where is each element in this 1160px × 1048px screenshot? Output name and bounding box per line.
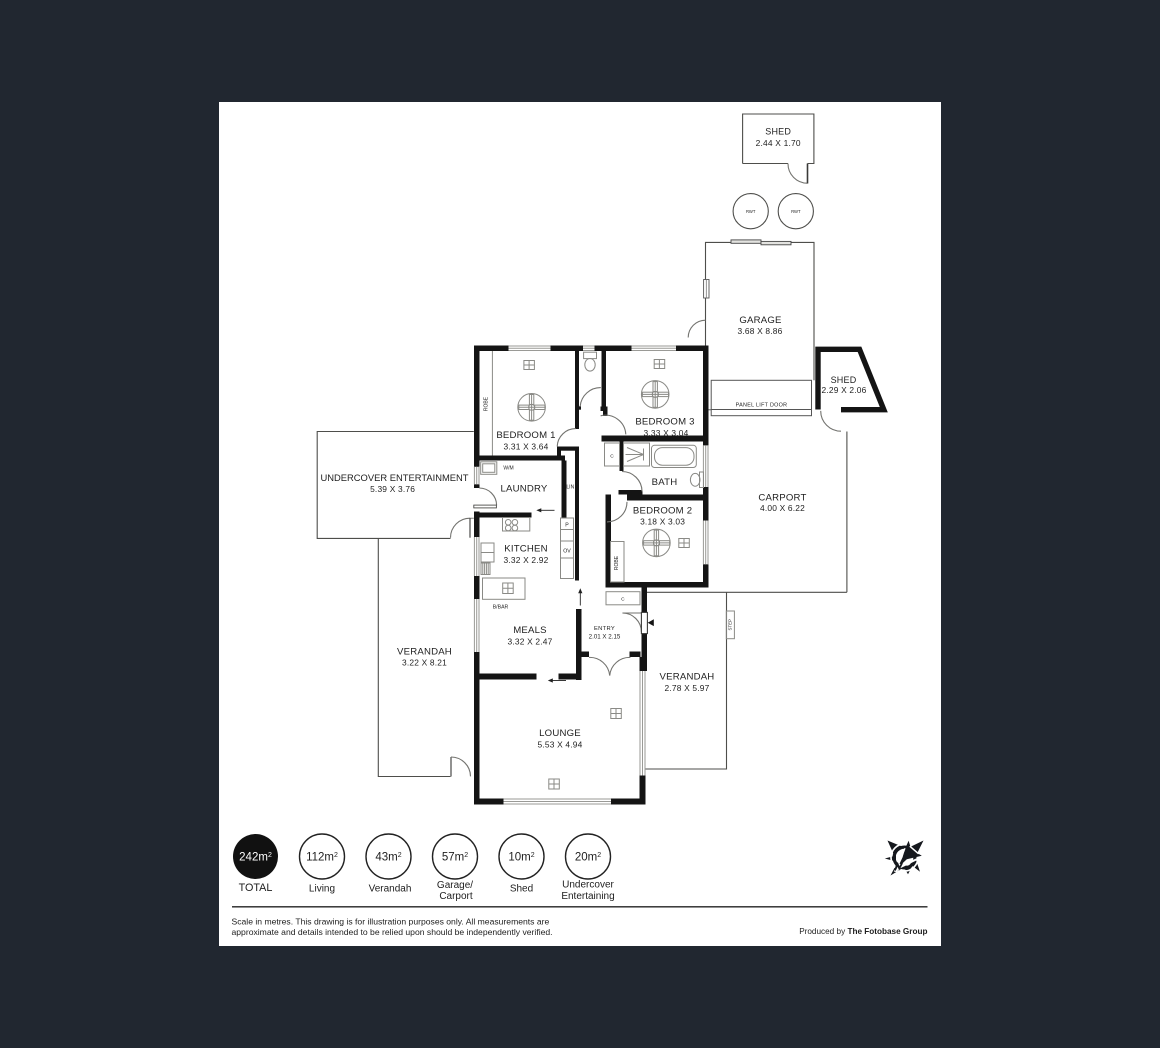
svg-text:UNDERCOVER ENTERTAINMENT: UNDERCOVER ENTERTAINMENT [320,472,468,483]
svg-text:LAUNDRY: LAUNDRY [500,483,547,494]
svg-text:Scale in metres. This drawing: Scale in metres. This drawing is for ill… [232,917,550,927]
svg-text:3.68 X 8.86: 3.68 X 8.86 [737,326,782,336]
svg-text:3.32 X 2.47: 3.32 X 2.47 [507,636,552,646]
svg-text:3.22 X 8.21: 3.22 X 8.21 [402,658,447,668]
svg-text:ENTRY: ENTRY [594,626,615,632]
svg-text:Produced by The Fotobase Group: Produced by The Fotobase Group [799,927,927,936]
svg-text:MEALS: MEALS [513,625,547,636]
svg-text:OV: OV [563,549,571,555]
svg-text:BEDROOM 2: BEDROOM 2 [633,506,692,517]
svg-text:GARAGE: GARAGE [739,315,781,326]
svg-text:BEDROOM 1: BEDROOM 1 [496,430,555,441]
svg-text:SHED: SHED [831,375,857,385]
svg-text:242m2: 242m2 [239,852,272,864]
svg-text:112m2: 112m2 [306,852,338,864]
svg-text:5.39 X 3.76: 5.39 X 3.76 [370,484,415,494]
svg-text:B/BAR: B/BAR [493,604,509,610]
svg-text:2.29 X 2.06: 2.29 X 2.06 [821,385,866,395]
svg-text:approximate and details intend: approximate and details intended to be r… [232,927,553,937]
svg-text:2.01 X 2.15: 2.01 X 2.15 [589,634,621,641]
svg-text:STEP: STEP [728,619,733,631]
svg-text:ROBE: ROBE [483,396,489,411]
svg-text:BEDROOM 3: BEDROOM 3 [635,417,694,428]
svg-text:TOTAL: TOTAL [239,882,273,894]
svg-text:BATH: BATH [652,477,678,488]
svg-text:4.00 X 6.22: 4.00 X 6.22 [760,503,805,513]
svg-text:RWT: RWT [746,209,756,214]
svg-text:ROBE: ROBE [614,555,620,570]
svg-text:3.33 X 3.04: 3.33 X 3.04 [643,428,688,438]
svg-text:Entertaining: Entertaining [561,891,614,902]
svg-text:LIN: LIN [566,484,574,490]
svg-text:Carport: Carport [439,891,473,902]
svg-text:W/M: W/M [503,466,513,472]
svg-text:KITCHEN: KITCHEN [504,544,548,555]
svg-text:PANEL LIFT DOOR: PANEL LIFT DOOR [736,402,788,408]
svg-text:LOUNGE: LOUNGE [539,728,581,739]
svg-text:C: C [621,597,625,603]
svg-text:Garage/: Garage/ [437,880,473,891]
svg-text:3.32 X 2.92: 3.32 X 2.92 [503,555,548,565]
svg-text:2.78 X 5.97: 2.78 X 5.97 [664,683,709,693]
svg-text:SHED: SHED [765,127,791,137]
svg-text:P: P [565,523,569,529]
svg-text:3.31 X 3.64: 3.31 X 3.64 [503,441,548,451]
svg-text:Verandah: Verandah [369,884,412,895]
svg-text:VERANDAH: VERANDAH [660,672,715,683]
svg-text:5.53 X 4.94: 5.53 X 4.94 [537,740,582,750]
svg-text:C: C [610,453,614,459]
svg-text:RWT: RWT [791,209,801,214]
svg-text:Shed: Shed [510,884,533,895]
svg-text:3.18 X 3.03: 3.18 X 3.03 [640,516,685,526]
svg-text:Undercover: Undercover [562,880,614,891]
svg-text:CARPORT: CARPORT [758,492,806,503]
svg-text:VERANDAH: VERANDAH [397,647,452,658]
svg-text:Living: Living [309,884,335,895]
svg-text:2.44 X 1.70: 2.44 X 1.70 [756,138,801,148]
